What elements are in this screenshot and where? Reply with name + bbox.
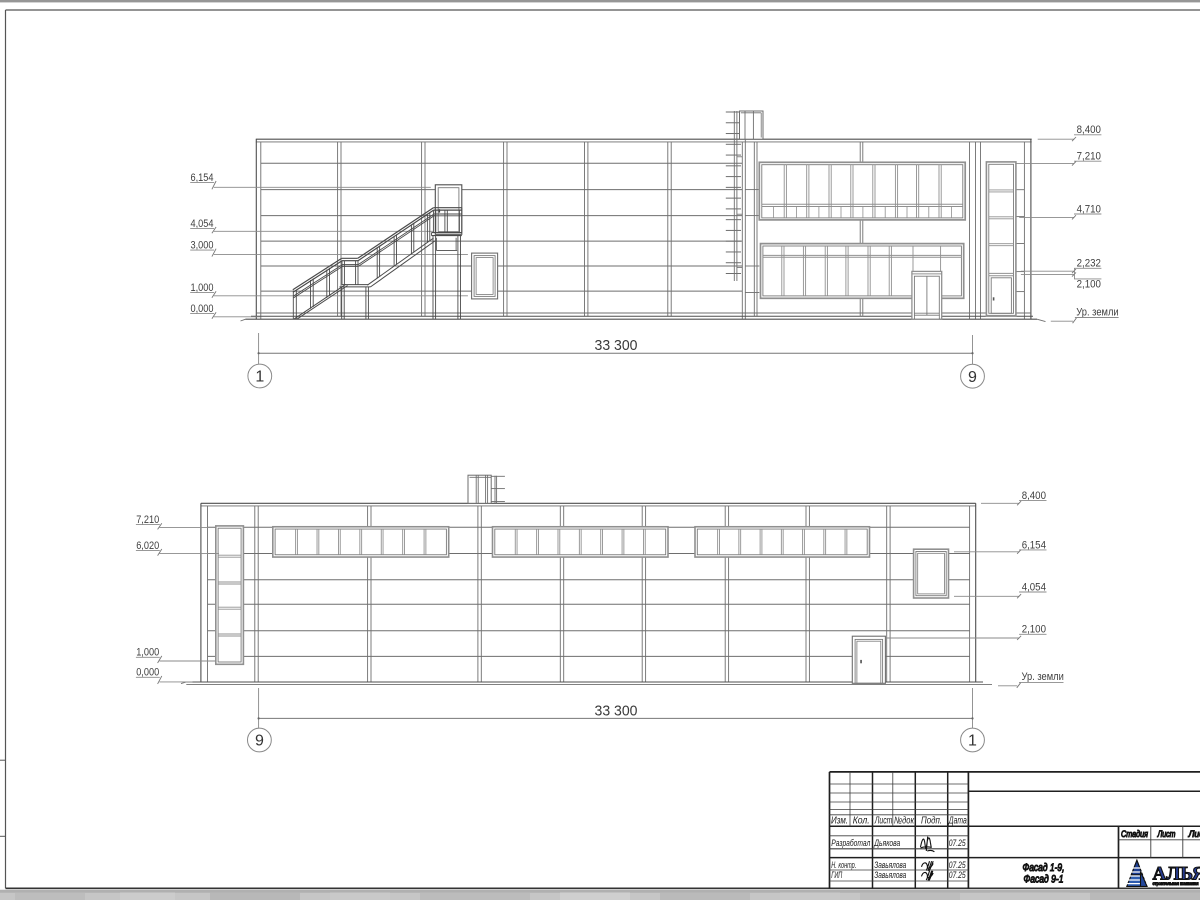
- svg-text:Разработал: Разработал: [831, 838, 870, 848]
- svg-text:Ур. земли: Ур. земли: [1022, 671, 1064, 683]
- svg-text:Фасад 9-1: Фасад 9-1: [1024, 873, 1064, 885]
- svg-text:Изм.: Изм.: [831, 815, 848, 826]
- svg-text:№док: №док: [894, 815, 915, 826]
- svg-text:Лист: Лист: [1157, 829, 1176, 840]
- svg-text:Стадия: Стадия: [1121, 829, 1148, 840]
- svg-text:Ур. земли: Ур. земли: [1076, 306, 1118, 318]
- svg-text:Кол.: Кол.: [853, 815, 870, 826]
- svg-text:Завьялова: Завьялова: [874, 870, 906, 880]
- svg-text:ГИП: ГИП: [831, 870, 842, 880]
- svg-text:07.25: 07.25: [949, 870, 967, 880]
- svg-text:Лис: Лис: [1188, 829, 1200, 840]
- svg-text:Лист: Лист: [874, 815, 892, 826]
- svg-text:Завьялова: Завьялова: [874, 860, 906, 870]
- svg-text:07.25: 07.25: [949, 838, 967, 848]
- svg-text:Фасад 1-9,: Фасад 1-9,: [1023, 862, 1065, 874]
- svg-text:Дата: Дата: [948, 815, 967, 826]
- svg-text:2,100: 2,100: [1077, 279, 1101, 291]
- svg-text:9: 9: [968, 369, 977, 386]
- svg-text:1: 1: [255, 369, 264, 386]
- svg-text:33 300: 33 300: [595, 337, 638, 354]
- svg-text:07.25: 07.25: [949, 860, 967, 870]
- svg-text:Дьякова: Дьякова: [874, 838, 901, 848]
- svg-text:9: 9: [255, 733, 264, 750]
- svg-text:Н. контр.: Н. контр.: [831, 860, 856, 870]
- svg-text:33 300: 33 300: [595, 702, 638, 719]
- svg-text:1: 1: [968, 733, 977, 750]
- svg-text:строительная компания: строительная компания: [1153, 882, 1199, 887]
- svg-text:Подп.: Подп.: [921, 815, 942, 826]
